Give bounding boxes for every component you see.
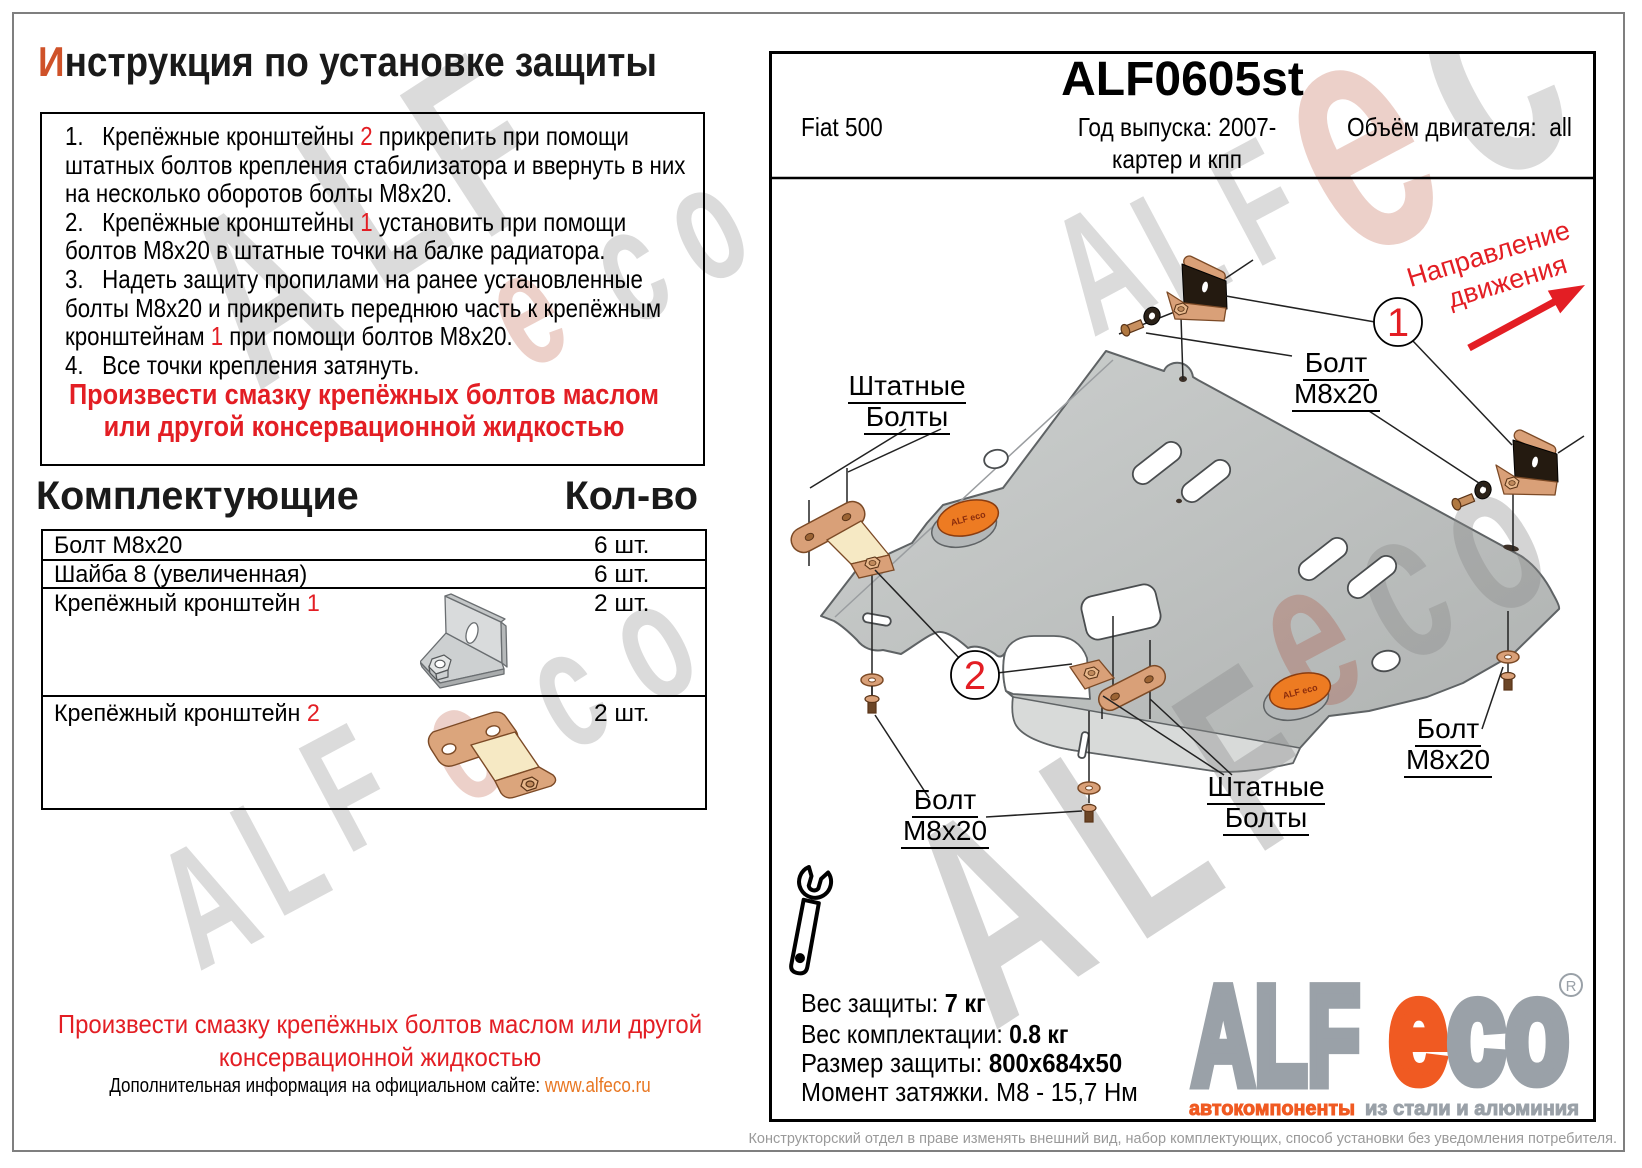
svg-text:Вес комплектации: 0.8 кг: Вес комплектации: 0.8 кг bbox=[801, 1021, 1068, 1049]
svg-text:Болт: Болт bbox=[1417, 713, 1480, 744]
svg-text:Болты: Болты bbox=[866, 401, 949, 432]
svg-text:М8х20: М8х20 bbox=[903, 815, 987, 846]
svg-text:М8х20: М8х20 bbox=[1294, 378, 1378, 409]
svg-text:Болты: Болты bbox=[1225, 802, 1308, 833]
svg-text:Размер защиты: 800х684х50: Размер защиты: 800х684х50 bbox=[801, 1050, 1122, 1078]
svg-text:2: 2 bbox=[964, 654, 986, 698]
svg-text:Болт: Болт bbox=[1305, 347, 1368, 378]
svg-text:Штатные: Штатные bbox=[1207, 771, 1324, 802]
svg-text:Штатные: Штатные bbox=[848, 370, 965, 401]
svg-text:автокомпоненты: автокомпоненты bbox=[1189, 1098, 1355, 1120]
svg-text:1: 1 bbox=[1387, 301, 1409, 345]
svg-text:R: R bbox=[1566, 978, 1577, 995]
svg-text:Вес защиты: 7 кг: Вес защиты: 7 кг bbox=[801, 990, 986, 1018]
svg-text:из стали и алюминия: из стали и алюминия bbox=[1365, 1098, 1579, 1120]
svg-text:ALF: ALF bbox=[1192, 957, 1360, 1114]
svg-text:М8х20: М8х20 bbox=[1406, 744, 1490, 775]
svg-text:Болт: Болт bbox=[914, 784, 977, 815]
svg-text:Момент затяжки. М8 - 15,7 Нм: Момент затяжки. М8 - 15,7 Нм bbox=[801, 1079, 1138, 1107]
svg-text:eco: eco bbox=[1389, 949, 1569, 1113]
